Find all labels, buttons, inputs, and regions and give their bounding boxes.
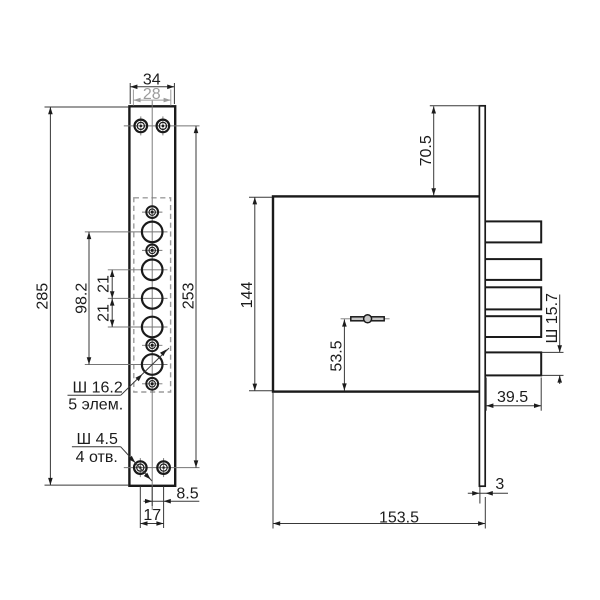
svg-text:21: 21	[95, 304, 112, 322]
svg-text:Ш 15.7: Ш 15.7	[544, 293, 561, 343]
svg-text:28: 28	[143, 86, 161, 103]
svg-text:21: 21	[95, 275, 112, 293]
svg-text:70.5: 70.5	[418, 135, 435, 166]
svg-text:53.5: 53.5	[329, 340, 346, 371]
svg-text:98.2: 98.2	[74, 283, 91, 314]
svg-text:4 отв.: 4 отв.	[76, 449, 118, 466]
svg-text:8.5: 8.5	[176, 486, 198, 503]
svg-text:285: 285	[35, 283, 52, 310]
svg-text:Ш 16.2: Ш 16.2	[73, 380, 123, 397]
svg-text:3: 3	[495, 476, 504, 493]
svg-text:144: 144	[239, 282, 256, 309]
svg-text:17: 17	[143, 507, 161, 524]
svg-text:253: 253	[181, 282, 198, 309]
svg-text:Ш 4.5: Ш 4.5	[77, 431, 118, 448]
svg-text:39.5: 39.5	[497, 389, 528, 406]
svg-text:153.5: 153.5	[379, 509, 419, 526]
svg-text:5 элем.: 5 элем.	[68, 396, 123, 413]
